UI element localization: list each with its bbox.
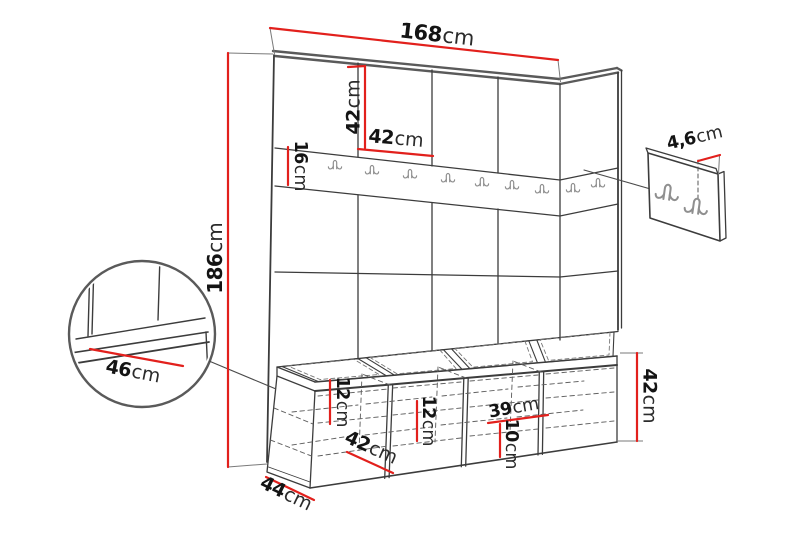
panel-row-divider [275,271,618,277]
coat-hook-icon [403,170,416,179]
dim-line-panel-width [358,149,433,156]
diagram-line-art [0,0,800,533]
coat-hook-icon [475,178,488,187]
hook-panel-detail [584,148,726,241]
coat-hook-icon [328,161,341,170]
seat-pads [282,332,614,382]
compartment-dividers [385,371,544,478]
detail-leader-line [209,361,276,389]
wall-top-edge [273,51,622,84]
wall-panel-unit [267,51,622,462]
coat-hook-icon [505,181,518,190]
furniture-dimension-diagram: 168cm 42cm 42cm 16cm 186cm 46cm 44cm 12c… [0,0,800,533]
coat-hook-icon [566,184,579,193]
hook-rail [328,161,604,194]
dimension-lines [90,28,720,500]
bench-left-edge [310,391,315,488]
bench-bottom-edge [310,442,617,488]
dim-line-top-panel-height [348,66,365,148]
coat-hook-icon [591,179,604,188]
shelf-dashed-lines [271,361,615,456]
coat-hook-icon [365,166,378,175]
storage-bench [267,332,618,489]
wall-left-edge [267,55,274,462]
bench-side-face [267,376,310,488]
dim-line-hook-panel-offset [698,155,720,161]
coat-hook-icon [441,174,454,183]
extension-lines [228,28,643,467]
seat-detail-circle [69,256,276,407]
coat-hook-icon [535,185,548,194]
